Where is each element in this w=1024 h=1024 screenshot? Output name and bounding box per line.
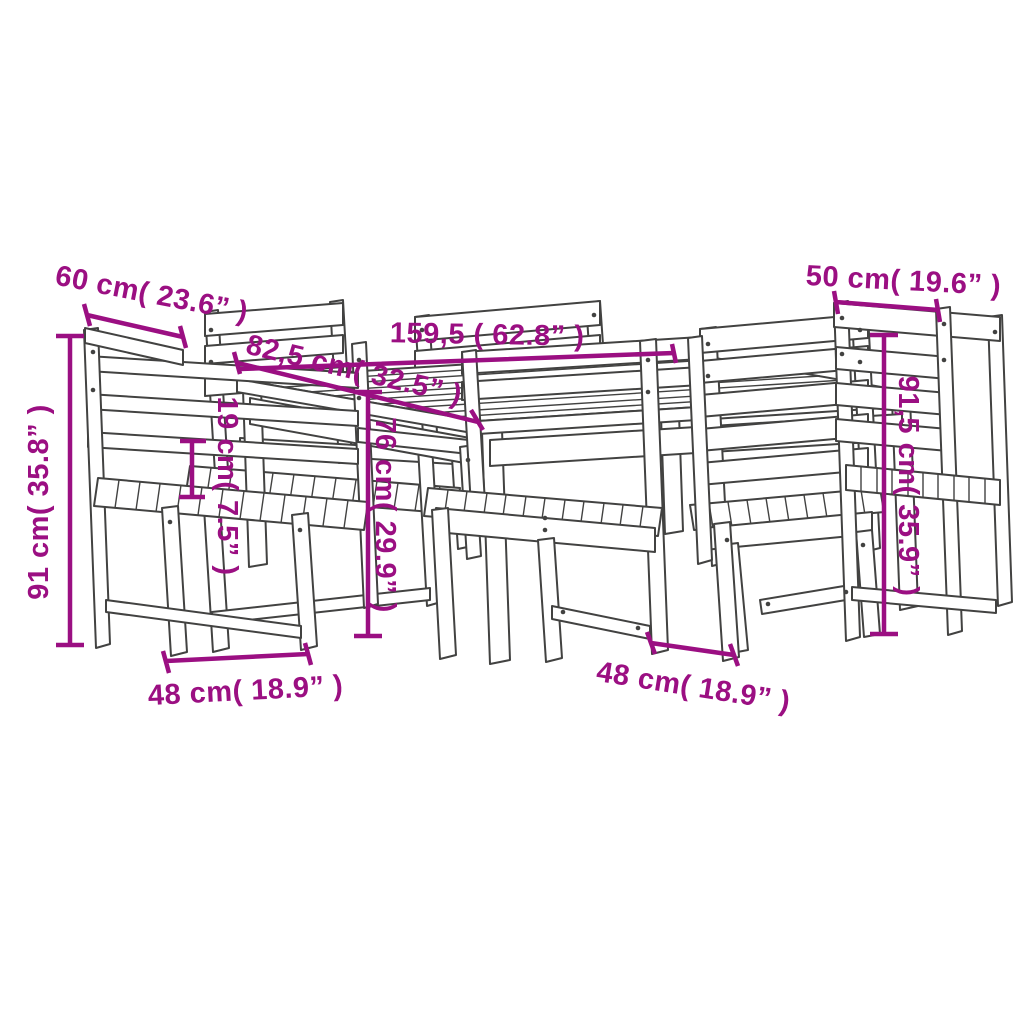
dim-label: 48 cm( 18.9” ) [594, 656, 792, 718]
dim-label: 76 cm( 29.9” ) [369, 417, 401, 613]
dim-left-chair-height: 91 cm( 35.8” ) [23, 336, 84, 645]
dim-line [56, 336, 84, 645]
dim-label: 159,5 ( 62.8” ) [390, 317, 585, 352]
dim-label: 19 cm( 7.5” ) [211, 397, 243, 576]
dining-set-diagram-canvas: 60 cm( 23.6” ) 50 cm( 19.6” ) 82,5 cm( 3… [0, 0, 1024, 1024]
chair-front-center [424, 336, 739, 662]
dim-label: 91,5 cm( 35.9” ) [892, 376, 924, 597]
dim-label: 60 cm( 23.6” ) [53, 260, 251, 329]
dim-label: 48 cm( 18.9” ) [147, 670, 344, 712]
product-dimension-diagram: 60 cm( 23.6” ) 50 cm( 19.6” ) 82,5 cm( 3… [0, 0, 1024, 1024]
dim-front-right-chair-seat-width: 48 cm( 18.9” ) [594, 632, 792, 718]
dim-label: 91 cm( 35.8” ) [23, 404, 55, 600]
